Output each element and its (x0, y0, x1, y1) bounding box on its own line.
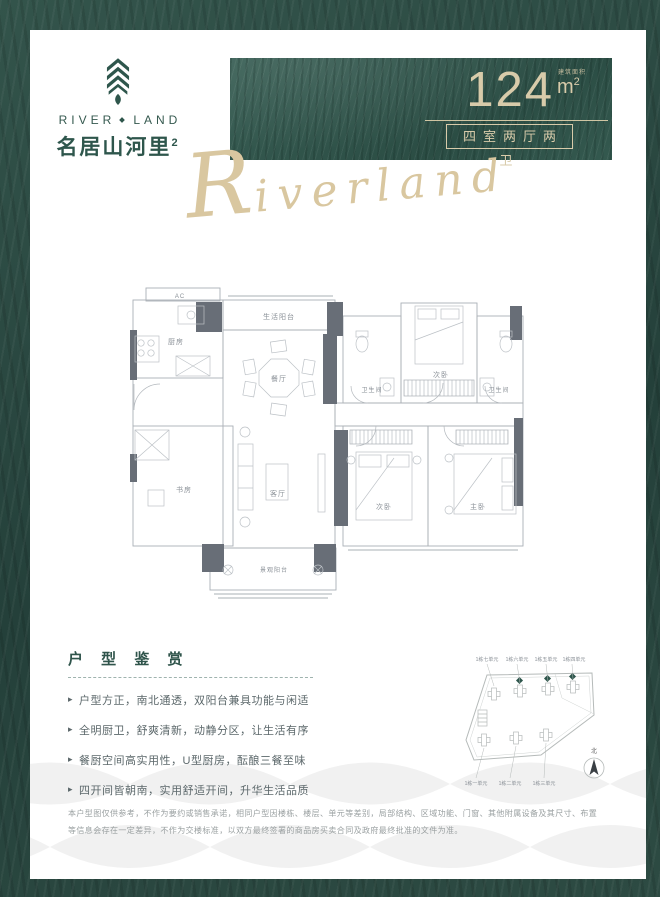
appreciation-text: 全明厨卫，舒爽清新，动静分区，让生活有序 (79, 722, 309, 738)
room-label-ac: AC (175, 294, 185, 300)
unit-label: 1栋二单元 (499, 780, 522, 787)
bullet-arrow-icon: ▸ (68, 752, 73, 768)
bullet-arrow-icon: ▸ (68, 692, 73, 708)
appreciation-item: ▸ 户型方正，南北通透，双阳台兼具功能与闲适 (68, 692, 348, 708)
content-card: RIVER LAND 名居山河里2 124建筑面积m2 四室两厅两卫 River… (30, 30, 646, 879)
appreciation-text: 餐厨空间高实用性，U型厨房，酝酿三餐至味 (79, 752, 306, 768)
room-label-service-balcony: 生活阳台 (263, 312, 295, 321)
brand-name-sup: 2 (171, 137, 179, 149)
appreciation-title: 户 型 鉴 赏 (68, 648, 348, 669)
appreciation-item: ▸ 餐厨空间高实用性，U型厨房，酝酿三餐至味 (68, 752, 348, 768)
unit-label: 1栋四单元 (563, 656, 586, 663)
unit-label: 1栋六单元 (506, 656, 529, 663)
north-label: 北 (591, 747, 597, 755)
brand-name-en-right: LAND (129, 113, 181, 127)
diamond-dot-icon (119, 117, 125, 123)
siteplan-map: 1栋七单元 1栋六单元 1栋五单元 1栋四单元 1栋一单元 1栋二单元 1栋三单… (454, 640, 614, 790)
script-watermark: Riverland (180, 98, 510, 249)
siteplan-buildings (478, 681, 579, 746)
leaf-logo-icon (101, 56, 135, 108)
bullet-arrow-icon: ▸ (68, 722, 73, 738)
area-unit: m (557, 76, 574, 98)
room-label-study: 书房 (176, 485, 192, 494)
room-label-view-balcony: 景观阳台 (260, 566, 288, 574)
room-label-kitchen: 厨房 (168, 337, 184, 346)
brand-name-cn: 名居山河里2 (38, 131, 198, 161)
unit-label: 1栋七单元 (476, 656, 499, 663)
disclaimer-text: 本户型图仅供参考，不作为要约或销售承诺，相同户型因楼栋、楼层、单元等差别，局部结… (68, 806, 600, 840)
room-label-master: 主卧 (470, 502, 486, 511)
unit-label: 1栋三单元 (533, 780, 556, 787)
unit-label: 1栋一单元 (465, 780, 488, 787)
bullet-arrow-icon: ▸ (68, 782, 73, 798)
appreciation-item: ▸ 四开间皆朝南，实用舒适开间，升华生活品质 (68, 782, 348, 798)
brand-logo: RIVER LAND 名居山河里2 (38, 56, 198, 161)
room-label-dining: 餐厅 (271, 374, 287, 383)
appreciation-item: ▸ 全明厨卫，舒爽清新，动静分区，让生活有序 (68, 722, 348, 738)
room-label-living: 客厅 (270, 489, 286, 498)
room-label-bedroom2-top: 次卧 (433, 370, 449, 379)
appreciation-text: 户型方正，南北通透，双阳台兼具功能与闲适 (79, 692, 309, 708)
leader-lines (476, 664, 573, 778)
compass-icon: 北 (584, 747, 604, 778)
brand-name-en-left: RIVER (55, 113, 116, 127)
floorplan-drawing: AC 厨房 生活阳台 餐厅 卫生间 次卧 卫生间 书房 客厅 次卧 主卧 景观阳… (118, 278, 548, 628)
room-label-bath2: 卫生间 (488, 386, 509, 394)
appreciation-divider (68, 677, 313, 678)
unit-label: 1栋五单元 (535, 656, 558, 663)
appreciation-text: 四开间皆朝南，实用舒适开间，升华生活品质 (79, 782, 309, 798)
area-unit-sup: 2 (574, 76, 580, 88)
area-note-label: 建筑面积 (558, 70, 586, 76)
brochure-page: RIVER LAND 名居山河里2 124建筑面积m2 四室两厅两卫 River… (0, 0, 660, 897)
room-label-bedroom2: 次卧 (376, 502, 392, 511)
brand-name-en: RIVER LAND (38, 113, 198, 127)
appreciation-section: 户 型 鉴 赏 ▸ 户型方正，南北通透，双阳台兼具功能与闲适 ▸ 全明厨卫，舒爽… (68, 648, 348, 798)
appreciation-list: ▸ 户型方正，南北通透，双阳台兼具功能与闲适 ▸ 全明厨卫，舒爽清新，动静分区，… (68, 692, 348, 798)
room-label-bath1: 卫生间 (361, 386, 382, 394)
